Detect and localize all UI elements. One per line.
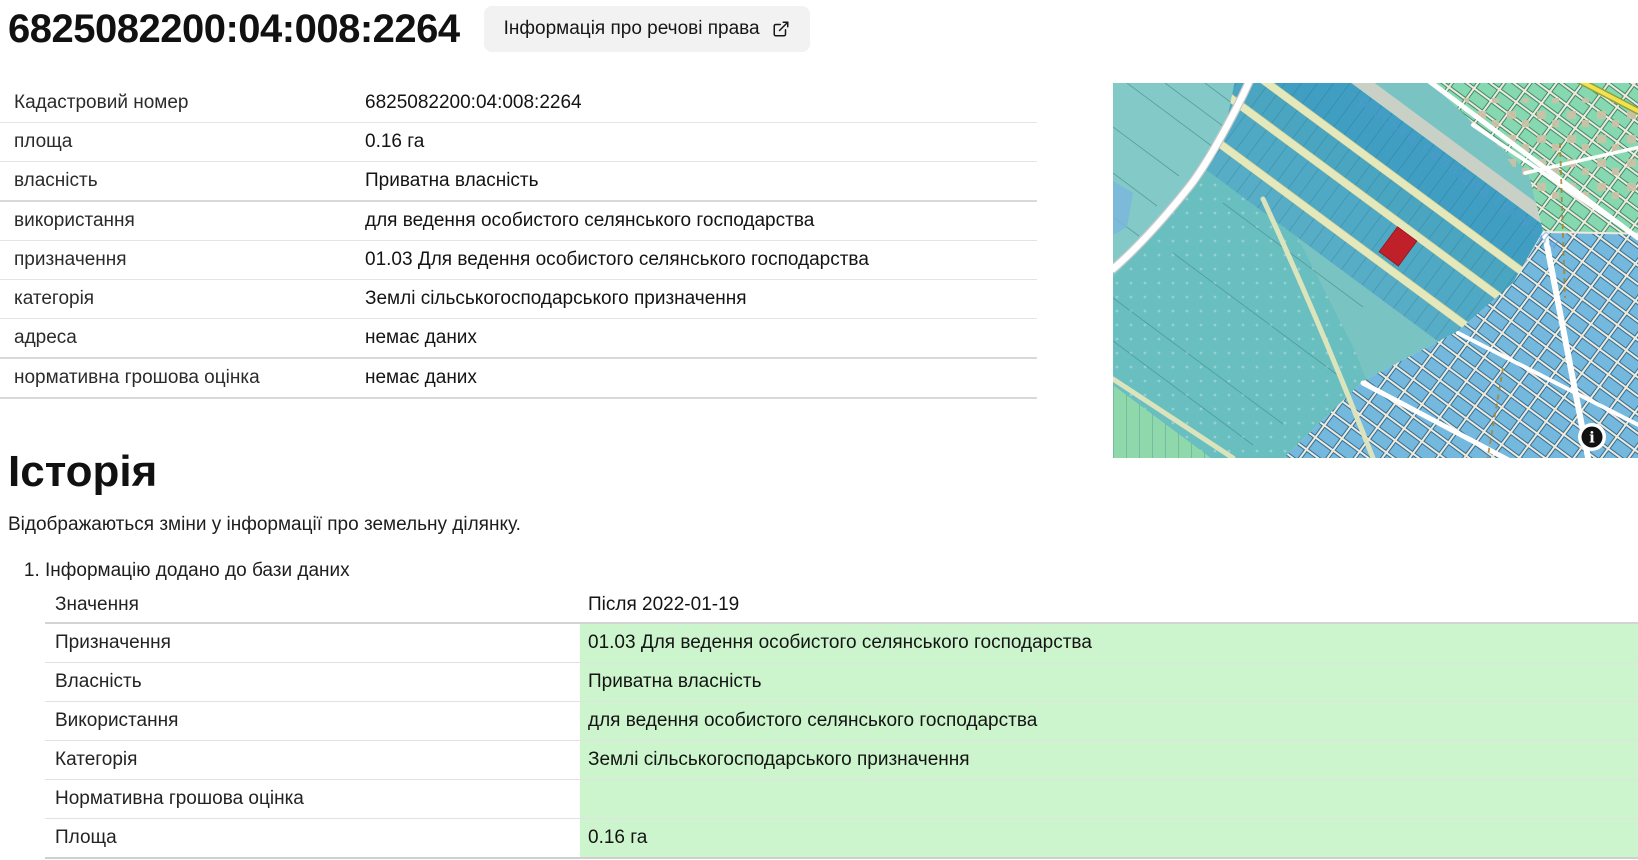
history-row-value: [580, 780, 1638, 818]
cadastral-map[interactable]: рівська селищна громада i: [1113, 83, 1638, 458]
table-row: нормативна грошова оцінка немає даних: [0, 359, 1037, 399]
history-heading: Історія: [8, 448, 1638, 496]
history-row-label: Власність: [45, 663, 580, 701]
detail-value: для ведення особистого селянського госпо…: [365, 210, 814, 232]
history-col-value: Після 2022-01-19: [580, 588, 1638, 622]
parcel-details-table: Кадастровий номер 6825082200:04:008:2264…: [0, 84, 1037, 399]
table-row: категорія Землі сільськогосподарського п…: [0, 280, 1037, 319]
history-row-value: Приватна власність: [580, 663, 1638, 701]
history-row-label: Площа: [45, 819, 580, 857]
page-header: 6825082200:04:008:2264 Інформація про ре…: [8, 0, 810, 58]
table-row: Кадастровий номер 6825082200:04:008:2264: [0, 84, 1037, 123]
table-row: призначення 01.03 Для ведення особистого…: [0, 241, 1037, 280]
history-row-value: 0.16 га: [580, 819, 1638, 857]
external-link-icon: [772, 20, 790, 38]
table-row: площа 0.16 га: [0, 123, 1037, 162]
detail-value: 01.03 Для ведення особистого селянського…: [365, 249, 869, 271]
detail-label: адреса: [0, 327, 365, 349]
table-row: використання для ведення особистого селя…: [0, 202, 1037, 241]
history-section: Історія Відображаються зміни у інформаці…: [0, 448, 1638, 859]
table-row: Власність Приватна власність: [45, 663, 1638, 702]
detail-value: 0.16 га: [365, 131, 424, 153]
detail-label: площа: [0, 131, 365, 153]
page-title: 6825082200:04:008:2264: [8, 7, 460, 52]
history-row-label: Нормативна грошова оцінка: [45, 780, 580, 818]
table-row: Значення Після 2022-01-19: [45, 588, 1638, 624]
cadastral-parcel-page: 6825082200:04:008:2264 Інформація про ре…: [0, 0, 1638, 860]
map-info-icon[interactable]: i: [1578, 423, 1606, 451]
detail-label: нормативна грошова оцінка: [0, 367, 365, 389]
history-description: Відображаються зміни у інформації про зе…: [8, 514, 1638, 536]
detail-label: використання: [0, 210, 365, 232]
table-row: Площа 0.16 га: [45, 819, 1638, 859]
detail-value: немає даних: [365, 327, 477, 349]
property-rights-button[interactable]: Інформація про речові права: [484, 6, 810, 52]
history-row-label: Категорія: [45, 741, 580, 779]
table-row: Призначення 01.03 Для ведення особистого…: [45, 624, 1638, 663]
svg-text:i: i: [1589, 429, 1595, 447]
detail-value: Землі сільськогосподарського призначення: [365, 288, 747, 310]
history-row-label: Використання: [45, 702, 580, 740]
history-row-label: Призначення: [45, 624, 580, 662]
property-rights-button-label: Інформація про речові права: [504, 18, 760, 40]
history-change-table: Значення Після 2022-01-19 Призначення 01…: [45, 588, 1638, 859]
history-col-label: Значення: [45, 588, 580, 622]
detail-value: 6825082200:04:008:2264: [365, 92, 582, 114]
detail-value: Приватна власність: [365, 170, 539, 192]
history-row-value: Землі сільськогосподарського призначення: [580, 741, 1638, 779]
history-row-value: для ведення особистого селянського госпо…: [580, 702, 1638, 740]
table-row: Категорія Землі сільськогосподарського п…: [45, 741, 1638, 780]
detail-label: категорія: [0, 288, 365, 310]
table-row: адреса немає даних: [0, 319, 1037, 359]
detail-label: призначення: [0, 249, 365, 271]
history-entries-list: Інформацію додано до бази даних: [0, 560, 1638, 582]
detail-label: власність: [0, 170, 365, 192]
table-row: власність Приватна власність: [0, 162, 1037, 202]
table-row: Використання для ведення особистого селя…: [45, 702, 1638, 741]
history-entry-title: Інформацію додано до бази даних: [45, 560, 1638, 582]
history-row-value: 01.03 Для ведення особистого селянського…: [580, 624, 1638, 662]
detail-label: Кадастровий номер: [0, 92, 365, 114]
detail-value: немає даних: [365, 367, 477, 389]
table-row: Нормативна грошова оцінка: [45, 780, 1638, 819]
